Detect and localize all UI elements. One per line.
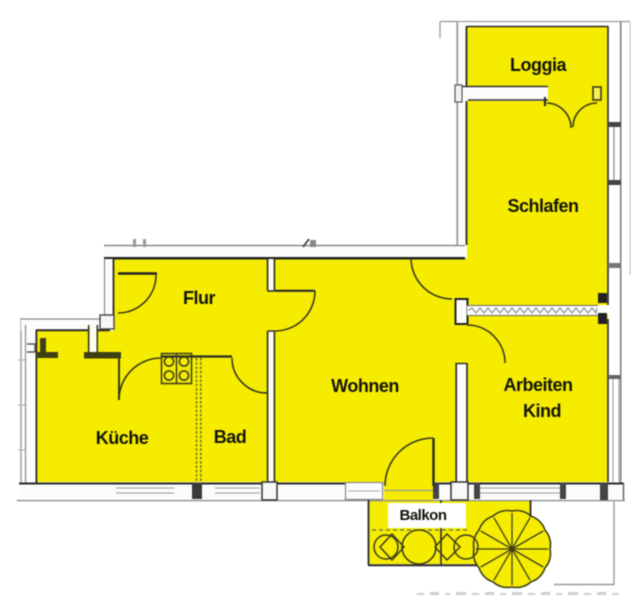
svg-text:Loggia: Loggia — [510, 55, 567, 75]
svg-text:Wohnen: Wohnen — [331, 376, 399, 396]
svg-text:Küche: Küche — [96, 428, 149, 448]
svg-text:Bad: Bad — [214, 427, 247, 447]
svg-text:Arbeiten: Arbeiten — [503, 375, 572, 395]
svg-text:Balkon: Balkon — [399, 507, 446, 524]
svg-text:Schlafen: Schlafen — [507, 196, 578, 216]
svg-text:Flur: Flur — [183, 288, 215, 308]
svg-text:Kind: Kind — [523, 401, 561, 421]
